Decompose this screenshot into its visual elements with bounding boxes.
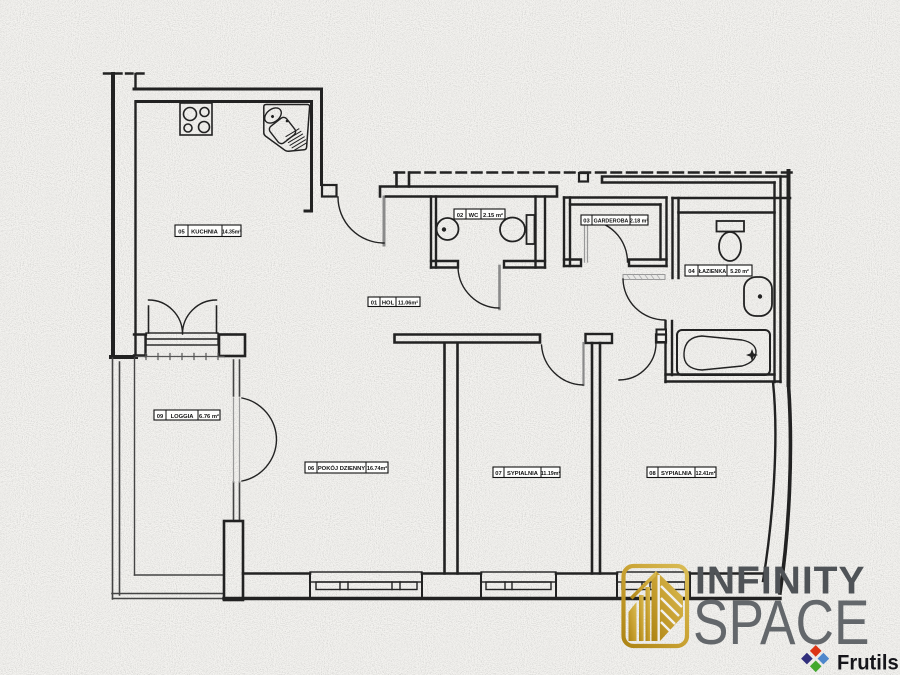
svg-text:6.76 m²: 6.76 m²: [199, 413, 219, 420]
svg-text:2.15 m²: 2.15 m²: [483, 212, 503, 219]
svg-text:HOL: HOL: [382, 301, 395, 307]
svg-text:08: 08: [649, 471, 656, 477]
svg-text:14.35m²: 14.35m²: [222, 230, 242, 236]
svg-text:05: 05: [178, 230, 185, 236]
svg-text:01: 01: [371, 301, 378, 307]
svg-text:Frutils: Frutils: [837, 651, 899, 675]
svg-text:11.06m²: 11.06m²: [398, 300, 418, 307]
svg-text:03: 03: [583, 219, 590, 225]
svg-text:LOGGIA: LOGGIA: [171, 414, 195, 420]
svg-text:KUCHNIA: KUCHNIA: [191, 230, 219, 236]
svg-text:POKÓJ DZIENNY: POKÓJ DZIENNY: [318, 464, 365, 472]
svg-text:07: 07: [495, 471, 501, 477]
svg-text:04: 04: [688, 269, 695, 275]
svg-text:02: 02: [457, 213, 463, 219]
svg-text:SYPIALNIA: SYPIALNIA: [661, 471, 693, 477]
svg-text:12.41m²: 12.41m²: [696, 471, 716, 477]
svg-text:GARDEROBA: GARDEROBA: [594, 219, 629, 225]
svg-text:09: 09: [157, 414, 164, 420]
svg-text:ŁAZIENKA: ŁAZIENKA: [699, 269, 726, 275]
svg-text:WC: WC: [469, 213, 479, 219]
svg-text:11.19m²: 11.19m²: [541, 471, 561, 477]
svg-text:2.18 m²: 2.18 m²: [630, 219, 648, 225]
svg-text:SPACE: SPACE: [693, 588, 869, 658]
svg-text:16.74m²: 16.74m²: [367, 466, 387, 472]
svg-text:06: 06: [308, 466, 315, 472]
svg-text:SYPIALNIA: SYPIALNIA: [507, 471, 539, 477]
svg-text:5.20 m²: 5.20 m²: [730, 269, 749, 275]
